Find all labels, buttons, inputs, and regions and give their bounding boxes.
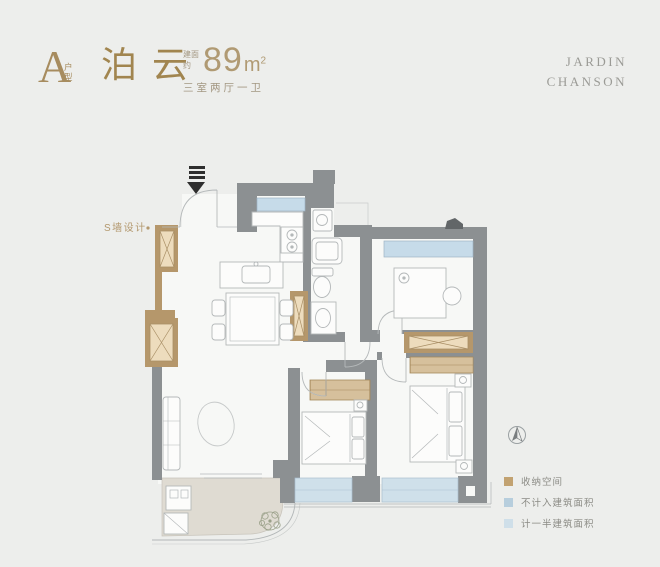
legend: 收纳空间 不计入建筑面积 计一半建筑面积 xyxy=(504,474,595,537)
legend-item-storage: 收纳空间 xyxy=(504,474,595,488)
chair xyxy=(212,300,225,316)
legend-item-excluded-area: 不计入建筑面积 xyxy=(504,495,595,509)
legend-item-half-area: 计一半建筑面积 xyxy=(504,516,595,530)
pillow xyxy=(352,439,364,459)
legend-label: 计一半建筑面积 xyxy=(521,516,595,530)
desk xyxy=(394,268,446,318)
pillow xyxy=(449,426,462,456)
legend-swatch-half xyxy=(504,519,513,528)
chair xyxy=(280,324,293,340)
s-wall-callout: S墙设计 xyxy=(104,221,150,234)
desk-chair xyxy=(443,287,461,305)
legend-label: 收纳空间 xyxy=(521,474,563,488)
toilet xyxy=(312,268,333,276)
legend-swatch-storage xyxy=(504,477,513,486)
nightstand xyxy=(455,374,471,387)
dining-table xyxy=(226,293,279,345)
sofa xyxy=(163,397,180,470)
entrance-arrow-icon xyxy=(187,166,205,194)
pillow xyxy=(449,392,462,422)
chair xyxy=(280,300,293,316)
legend-label: 不计入建筑面积 xyxy=(521,495,595,509)
floorplan-page: A 户型 泊云 建面约 89 m2 三室两厅一卫 JARDIN CHANSON xyxy=(0,0,660,567)
kitchen-sink xyxy=(242,266,270,283)
washbasin xyxy=(313,210,332,231)
vanity xyxy=(311,302,336,334)
s-wall-label: S墙设计 xyxy=(104,221,147,234)
pillow xyxy=(352,417,364,437)
nightstand xyxy=(456,460,472,473)
compass-icon xyxy=(509,427,526,444)
legend-swatch-excluded xyxy=(504,498,513,507)
chair xyxy=(212,324,225,340)
